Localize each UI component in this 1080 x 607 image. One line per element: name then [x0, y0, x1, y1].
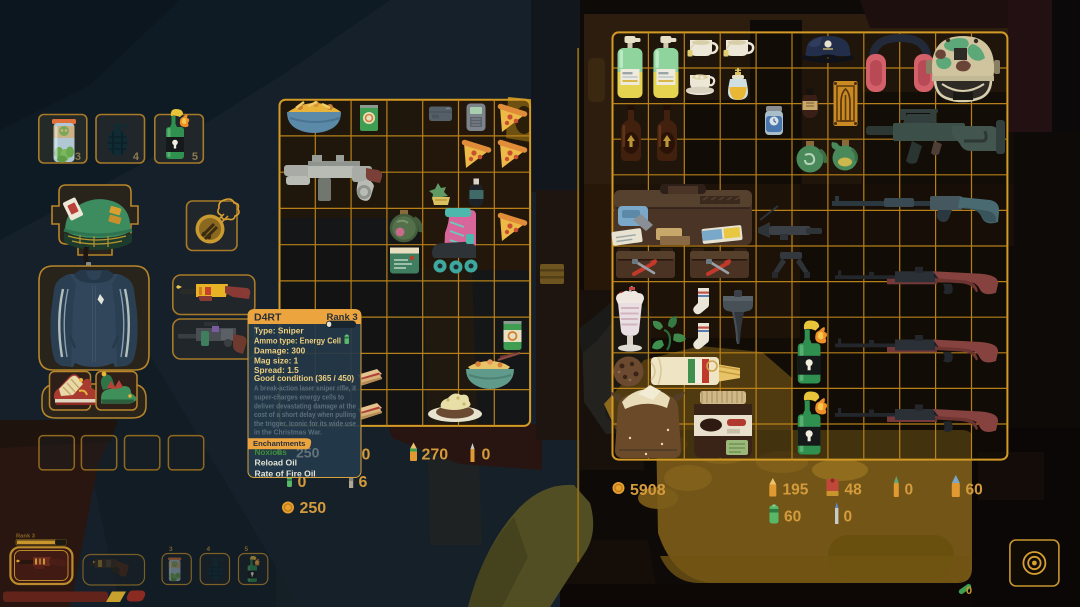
svg-text:3: 3	[75, 151, 81, 163]
svg-text:0: 0	[482, 447, 491, 464]
svg-text:0: 0	[966, 585, 972, 597]
svg-text:4: 4	[207, 546, 211, 553]
svg-text:270: 270	[422, 447, 449, 464]
svg-text:Noxious: Noxious	[255, 448, 288, 457]
svg-text:A break-action laser sniper ri: A break-action laser sniper rifle, it	[254, 384, 356, 393]
svg-text:Ammo type: Energy Cell: Ammo type: Energy Cell	[254, 336, 341, 346]
svg-text:5908: 5908	[630, 482, 666, 499]
svg-text:250: 250	[300, 500, 327, 517]
svg-text:0: 0	[905, 482, 914, 499]
svg-text:0: 0	[844, 509, 853, 526]
svg-text:3: 3	[169, 546, 173, 553]
svg-text:Enchantments: Enchantments	[253, 439, 305, 448]
svg-text:Reload Oil: Reload Oil	[255, 457, 298, 467]
svg-text:60: 60	[784, 509, 801, 526]
svg-text:Rate of Fire Oil: Rate of Fire Oil	[255, 468, 316, 478]
svg-text:Good condition (365 / 450): Good condition (365 / 450)	[254, 373, 354, 383]
svg-text:60: 60	[966, 482, 983, 499]
svg-text:D4RT: D4RT	[254, 312, 282, 324]
svg-text:Mag size: 1: Mag size: 1	[254, 356, 299, 366]
svg-text:5: 5	[245, 546, 249, 553]
svg-text:the trigger. Iconic for its wi: the trigger. Iconic for its wide use	[254, 419, 356, 428]
svg-text:195: 195	[783, 482, 809, 499]
svg-text:cost of a short delay when pul: cost of a short delay when pulling	[254, 410, 356, 419]
svg-text:deliver devastating damage at: deliver devastating damage at the	[254, 401, 356, 410]
svg-text:6: 6	[359, 474, 368, 491]
svg-text:5: 5	[192, 151, 198, 163]
svg-text:super-charges energy cells to: super-charges energy cells to	[254, 393, 344, 402]
svg-text:Rank 3: Rank 3	[16, 534, 36, 540]
svg-text:48: 48	[845, 482, 863, 499]
svg-text:Damage: 300: Damage: 300	[254, 346, 306, 356]
svg-text:Type: Sniper: Type: Sniper	[254, 326, 304, 336]
svg-text:0: 0	[362, 447, 371, 464]
svg-text:4: 4	[133, 151, 140, 163]
svg-text:in the Christmas War.: in the Christmas War.	[254, 428, 322, 437]
